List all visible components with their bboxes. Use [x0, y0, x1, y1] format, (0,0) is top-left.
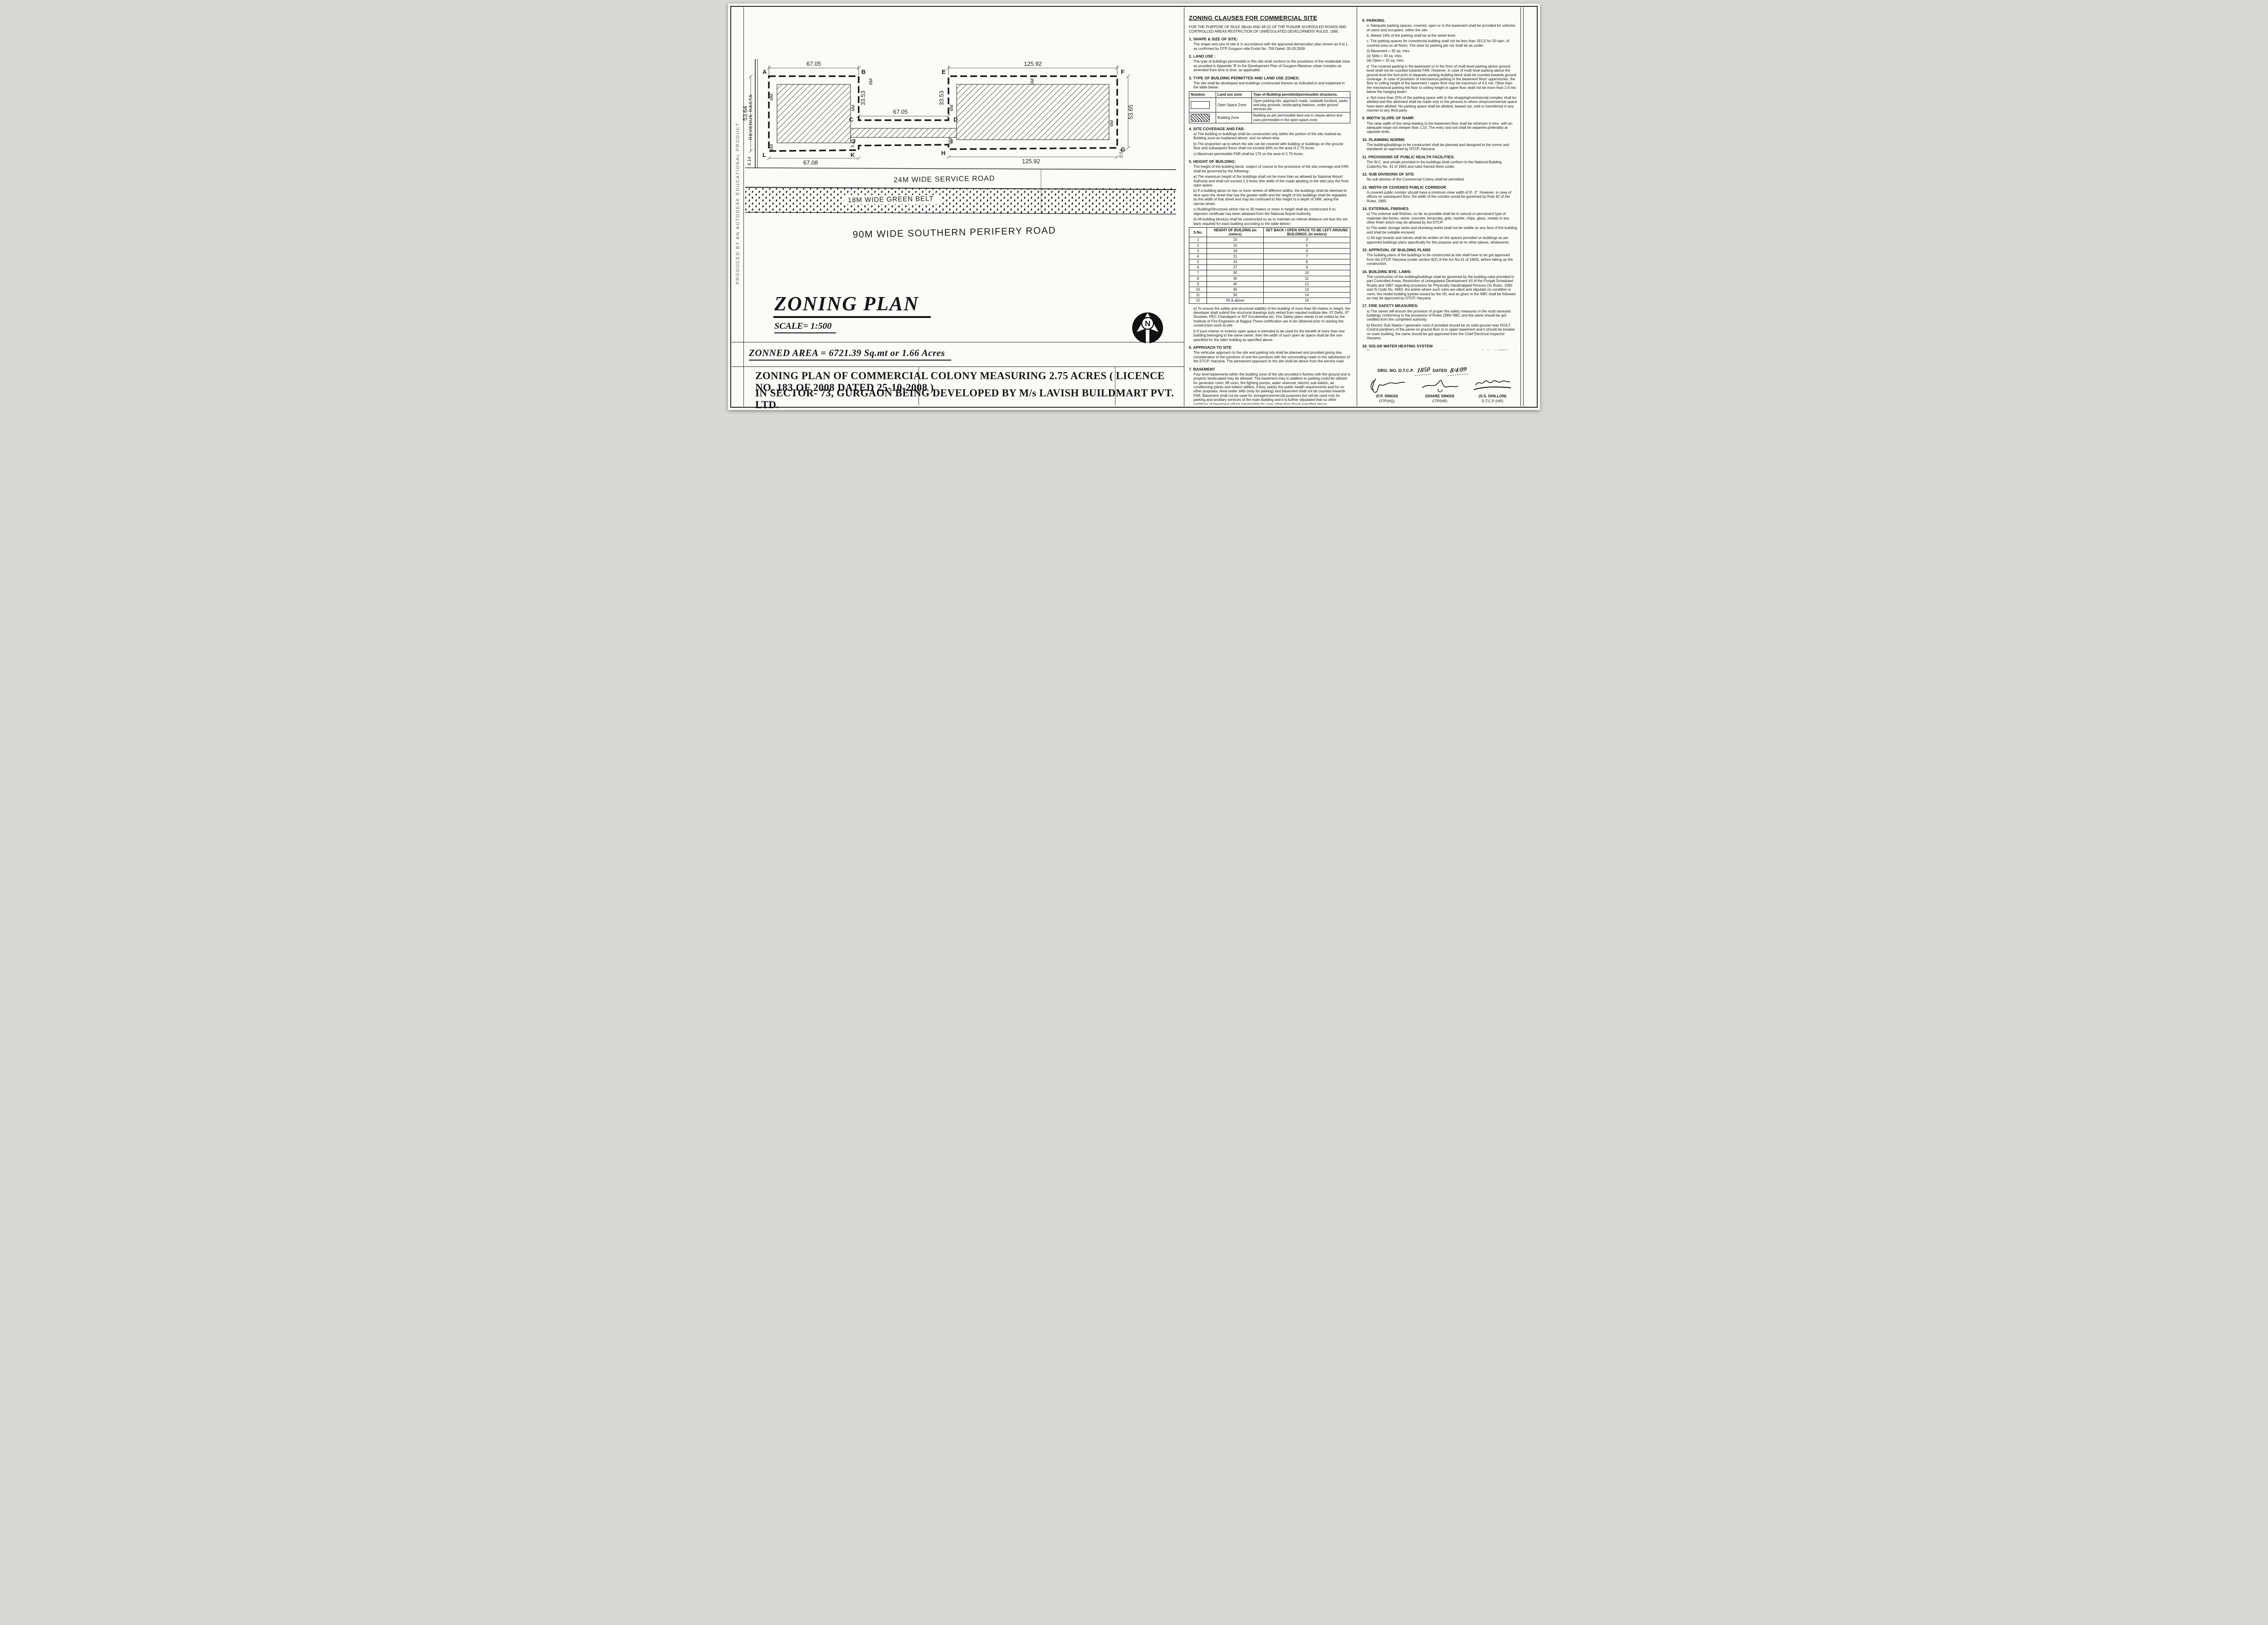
clause-14a: a) The external wall finishes, so far as…	[1367, 212, 1517, 224]
clause-14-title: 14. EXTERNAL FINISHES	[1362, 206, 1517, 211]
green-belt-band	[745, 188, 1176, 213]
clause-4c: c) Maximum permissible FAR shall be 175 …	[1193, 152, 1350, 156]
clause-9p-a: a. Adequate parking spaces, covered, ope…	[1367, 24, 1517, 32]
svg-text:6M: 6M	[769, 144, 774, 151]
dim-left: 53.64	[742, 106, 748, 121]
title-band: ZONING PLAN OF COMMERCIAL COLONY MEASURI…	[732, 366, 1184, 405]
table-row: 5248	[1189, 259, 1350, 265]
clause-9r-body: The clear width of the ramp leading to t…	[1367, 122, 1517, 134]
clause-17b: b) Electric Sub Station / generator room…	[1367, 323, 1517, 341]
clauses-intro: FOR THE PURPOSE OF RULE 38(xiii) AND 48 …	[1189, 25, 1350, 34]
clause-9p-iii: (iii) Open = 25 sq. mtrs.	[1367, 59, 1517, 63]
point-c: C	[849, 116, 854, 123]
svg-text:6M: 6M	[949, 105, 954, 112]
clause-1-body: The shape and size of site is in accorda…	[1193, 42, 1350, 51]
dim-ef: 125.92	[1024, 60, 1042, 67]
clause-9p-b: b. Atleast 15% of the parking shall be a…	[1367, 34, 1517, 38]
signature-mark	[1473, 378, 1512, 393]
signature-mark	[1368, 378, 1407, 393]
dim-lk: 67.08	[803, 159, 818, 166]
land-use-table: Notation Land use zone Type of Building …	[1189, 91, 1350, 123]
compass-n-label: N	[1145, 319, 1150, 328]
clause-6-title: 6. APPROACH TO SITE	[1189, 345, 1350, 350]
column-divider-1	[1184, 7, 1184, 406]
clause-12-title: 12. SUB DIVISIONS OF SITE	[1362, 172, 1517, 176]
clause-10-title: 10. PLANNING NORMS	[1362, 137, 1517, 142]
dim-ed: 33.53	[938, 91, 945, 106]
clause-9p-ii: (ii) Stilts = 30 sq. mtrs.	[1367, 54, 1517, 58]
building-zone-swatch	[1191, 114, 1210, 122]
clause-17a: a) The owner will ensure the provision o…	[1367, 309, 1517, 322]
zoning-clauses-column-right: 9. PARKING. a. Adequate parking spaces, …	[1362, 12, 1517, 405]
dim-bottom-left: 6.14	[747, 156, 752, 166]
clause-14b: b) The water storage tanks and plumbing …	[1367, 226, 1517, 234]
drg-number-line: DRG. NO. D.T.C.P. 1850 DATED 8/4/09	[1378, 367, 1517, 375]
clause-9p-c: c. The parking spaces for commercial bui…	[1367, 39, 1517, 48]
zoning-plan-sheet: PRODUCED BY AN AUTODESK EDUCATIONAL PROD…	[728, 4, 1540, 410]
height-setback-table: S.No. HEIGHT OF BUILDING (in meters) SET…	[1189, 227, 1350, 304]
point-d: D	[953, 116, 958, 123]
clause-15-title: 15. APPROVAL OF BUILDING PLANS	[1362, 248, 1517, 252]
clause-15-body: The building plans of the buildings to b…	[1367, 253, 1517, 266]
svg-text:6M: 6M	[948, 138, 953, 145]
signatures-row: (F.P. SINGH) DTP(HQ) (DHARE SINGH) CTP(H…	[1362, 378, 1517, 404]
table-row: Building Zone Building as per permissibl…	[1189, 112, 1350, 123]
clause-5d: d) All building block(s) shall be constr…	[1193, 217, 1350, 226]
table-row: 94012	[1189, 281, 1350, 287]
signature-mark	[1420, 378, 1459, 393]
clause-16-body: The construction of the building/buildin…	[1367, 275, 1517, 301]
table-row: 83511	[1189, 276, 1350, 281]
point-e: E	[942, 68, 946, 75]
clause-5c: c) Building/Structures which rise to 30 …	[1193, 207, 1350, 216]
clause-5e: e) To ensure fire safety and structural …	[1193, 307, 1350, 328]
right-frame-line-a	[1520, 7, 1521, 406]
clause-4b: b) The proportion up to which the site c…	[1193, 142, 1350, 151]
clause-18-title: 18. SOLAR WATER HEATING SYSTEM	[1362, 344, 1517, 348]
clause-12-body: No sub division of the Commercial Colony…	[1367, 177, 1517, 181]
signature-dtp: (F.P. SINGH) DTP(HQ)	[1362, 378, 1412, 404]
table-row: S.No. HEIGHT OF BUILDING (in meters) SET…	[1189, 227, 1350, 237]
clause-14c: c) All sign boards and names shall be wr…	[1367, 236, 1517, 244]
drg-prefix: DRG. NO. D.T.C.P.	[1378, 368, 1414, 373]
point-h: H	[941, 150, 945, 156]
dim-cd: 67.05	[893, 108, 908, 115]
clause-13-title: 13. WIDTH OF COVERED PUBLIC CORRIDOR	[1362, 185, 1517, 190]
drg-number-handwritten: 1850	[1414, 366, 1432, 376]
clause-5-intro: The height of the building block, subjec…	[1193, 165, 1350, 173]
clause-11-title: 11. PROVISIONS OF PUBLIC HEALTH FACILITI…	[1362, 155, 1517, 159]
drg-dated-label: DATED	[1432, 368, 1447, 373]
clause-4a: a) The building or buildings shall be co…	[1193, 132, 1350, 141]
dim-right: 53.65	[1127, 105, 1134, 120]
svg-text:6M: 6M	[850, 105, 856, 112]
table-row: 104513	[1189, 287, 1350, 293]
dim-bc: 33.53	[860, 91, 866, 106]
clause-11-body: The W.C. and urinals provided in the bui…	[1367, 160, 1517, 169]
separator-line-1	[732, 342, 1184, 342]
table-row: 73010	[1189, 270, 1350, 276]
project-description-line2: IN SECTOR- 73, GURGAON BEING DEVELOPED B…	[755, 387, 1182, 410]
road-label-green-belt: 18M WIDE GREEN BELT	[848, 195, 934, 204]
clause-7-title: 7. BASEMENT	[1189, 367, 1350, 371]
clause-1-title: 1. SHAPE & SIZE OF SITE:	[1189, 37, 1350, 41]
clause-9p-d: d. The covered parking in the basement o…	[1367, 64, 1517, 94]
clause-13-body: A covered public corridor should have a …	[1367, 190, 1517, 203]
clause-4-title: 4. SITE COVERAGE AND FAR:	[1189, 127, 1350, 131]
zoned-area-text: ZONNED AREA = 6721.39 Sq.mt or 1.66 Acre…	[749, 347, 951, 361]
clause-10-body: The building/buildings to be constructed…	[1367, 143, 1517, 151]
point-j: J	[852, 138, 855, 145]
clause-5f: f) If such interior or exterior open spa…	[1193, 329, 1350, 342]
clause-16-title: 16. BUILDING BYE- LAWS:	[1362, 269, 1517, 274]
clause-9p-title: 9. PARKING.	[1362, 18, 1517, 23]
clause-2-body: The type of buildings permissible in thi…	[1193, 59, 1350, 72]
clauses-heading: ZONING CLAUSES FOR COMMERCIAL SITE	[1189, 15, 1350, 21]
table-row: Notation Land use zone Type of Building …	[1189, 91, 1350, 98]
point-a: A	[763, 68, 767, 75]
zoning-clauses-column: ZONING CLAUSES FOR COMMERCIAL SITE FOR T…	[1189, 15, 1350, 405]
dim-hg: 125.92	[1022, 158, 1040, 165]
svg-text:6M: 6M	[1109, 120, 1114, 127]
clause-3-body: The site shall be developed and building…	[1193, 81, 1350, 90]
clause-5a: a) The maximum height of the buildings s…	[1193, 175, 1350, 187]
point-f: F	[1121, 68, 1124, 75]
north-compass-icon: N	[1131, 311, 1164, 346]
clause-18-body: The provision of solar water heating sys…	[1367, 349, 1517, 350]
table-row: Open Space Zone Open parking lots, appro…	[1189, 98, 1350, 112]
right-frame-line-b	[1523, 7, 1524, 406]
road-label-perifery: 90M WIDE SOUTHERN PERIFERY ROAD	[853, 225, 1056, 240]
table-row: 4217	[1189, 254, 1350, 259]
signature-ctp: (DHARE SINGH) CTP(HR)	[1415, 378, 1464, 404]
table-row: 2155	[1189, 243, 1350, 248]
table-row: 3186	[1189, 248, 1350, 254]
signature-dtcp: (S.S. DHILLON) D.T.C.P (HR)	[1468, 378, 1517, 404]
road-label-service: 24M WIDE SERVICE ROAD	[894, 175, 995, 184]
drawing-scale: SCALE= 1:500	[774, 321, 836, 333]
table-row: 115014	[1189, 293, 1350, 298]
drg-date-handwritten: 8/4/09	[1448, 366, 1469, 376]
svg-text:6M: 6M	[769, 94, 774, 101]
site-plan-drawing: REVENUE RASTA 67.05 125.92 67.05 67.08 1…	[737, 31, 1184, 285]
open-space-zone-swatch	[1191, 101, 1210, 109]
clause-6-body: The vehicular approach to the site and p…	[1193, 351, 1350, 363]
point-g: G	[1121, 146, 1125, 153]
point-b: B	[861, 68, 865, 75]
clause-3-title: 3. TYPE OF BUILDING PERMITTED AND LAND U…	[1189, 76, 1350, 80]
table-row: 1103	[1189, 237, 1350, 243]
table-row: 1255 & above16	[1189, 298, 1350, 303]
clause-9r-title: 9. WIDTH/ SLOPE OF RAMP.	[1362, 116, 1517, 120]
clause-9p-i: (i) Basement = 35 sq. mtrs.	[1367, 49, 1517, 53]
point-k: K	[850, 151, 855, 158]
drawing-title: ZONING PLAN	[773, 292, 931, 318]
revenue-rasta-boundary	[755, 59, 758, 168]
svg-text:6M: 6M	[868, 78, 874, 85]
clause-5b: b) If a building abuts on two or more st…	[1193, 189, 1350, 206]
point-l: L	[763, 151, 766, 158]
clause-9p-e: e. Not more than 25% of the parking spac…	[1367, 96, 1517, 113]
approval-block: DRG. NO. D.T.C.P. 1850 DATED 8/4/09 (F.P…	[1362, 365, 1517, 404]
clause-17-title: 17. FIRE SAFETY MEASURES:	[1362, 303, 1517, 308]
dim-ab: 67.05	[807, 60, 821, 67]
column-divider-2	[1357, 7, 1357, 406]
clause-5-title: 5. HEIGHT OF BUILDING:	[1189, 159, 1350, 164]
svg-text:6M: 6M	[1030, 78, 1035, 85]
table-row: 6279	[1189, 265, 1350, 270]
clause-2-title: 2. LAND USE :	[1189, 54, 1350, 59]
clause-7-body: Four level basements within the building…	[1193, 372, 1350, 405]
